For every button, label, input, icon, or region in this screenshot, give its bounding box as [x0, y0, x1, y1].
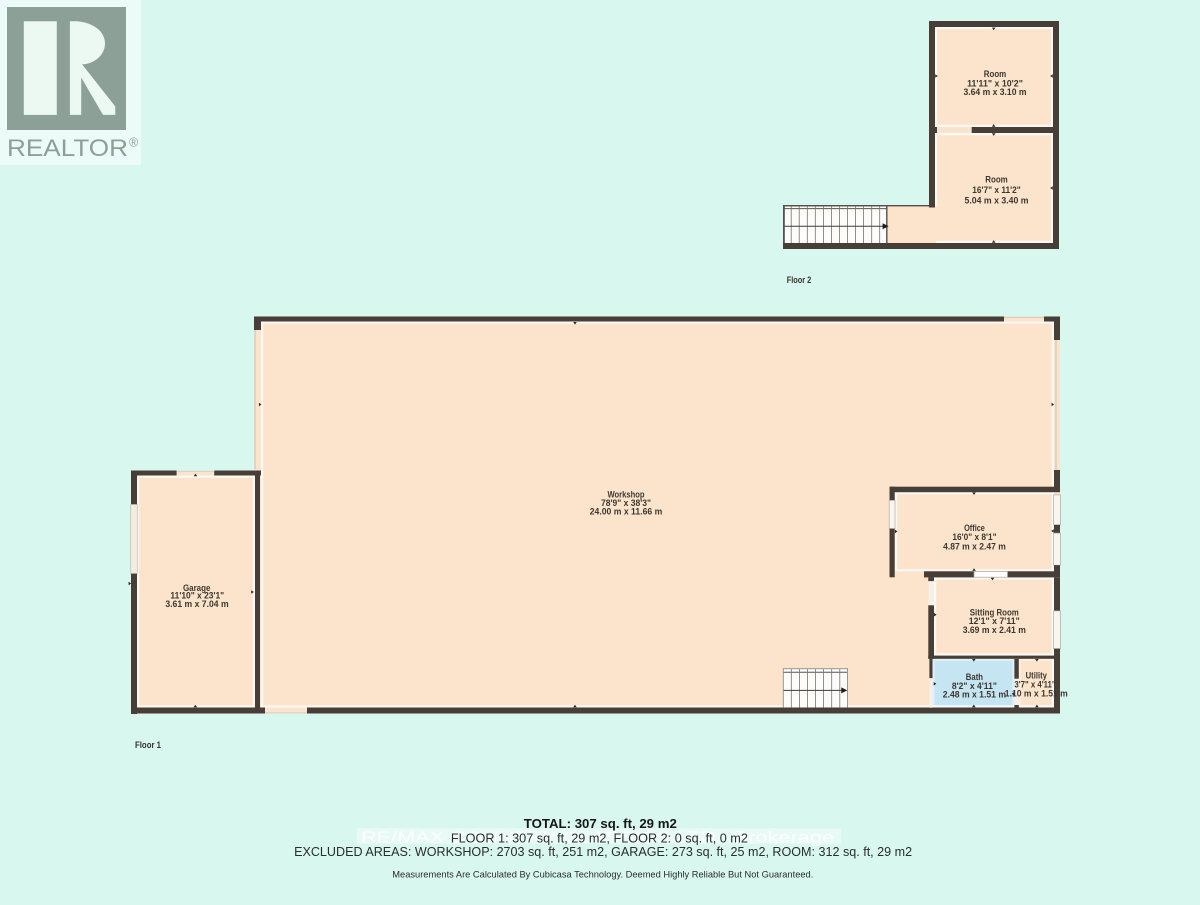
svg-text:16'7" x 11'2": 16'7" x 11'2" [972, 185, 1020, 195]
svg-text:4.87 m x 2.47 m: 4.87 m x 2.47 m [943, 541, 1006, 551]
svg-text:2.48 m x 1.51 m: 2.48 m x 1.51 m [943, 690, 1006, 700]
svg-text:Floor 1: Floor 1 [135, 739, 161, 750]
svg-text:TOTAL: 307 sq. ft, 29 m2: TOTAL: 307 sq. ft, 29 m2 [524, 817, 677, 831]
svg-text:3.61 m x 7.04 m: 3.61 m x 7.04 m [165, 599, 228, 609]
svg-text:5.04 m x 3.40 m: 5.04 m x 3.40 m [965, 195, 1029, 205]
svg-text:1.10 m x 1.51 m: 1.10 m x 1.51 m [1005, 689, 1068, 699]
svg-text:REALTOR: REALTOR [7, 135, 128, 162]
svg-text:®: ® [129, 136, 139, 150]
svg-text:Room: Room [985, 174, 1008, 184]
svg-text:Floor 2: Floor 2 [787, 274, 812, 285]
svg-text:EXCLUDED AREAS: WORKSHOP: 2703: EXCLUDED AREAS: WORKSHOP: 2703 sq. ft, 2… [294, 844, 912, 859]
svg-text:Measurements Are Calculated By: Measurements Are Calculated By Cubicasa … [392, 870, 813, 880]
svg-text:24.00 m x 11.66 m: 24.00 m x 11.66 m [590, 507, 663, 517]
svg-text:3.64 m x 3.10 m: 3.64 m x 3.10 m [964, 87, 1027, 97]
svg-text:3.69 m x 2.41 m: 3.69 m x 2.41 m [963, 625, 1026, 635]
